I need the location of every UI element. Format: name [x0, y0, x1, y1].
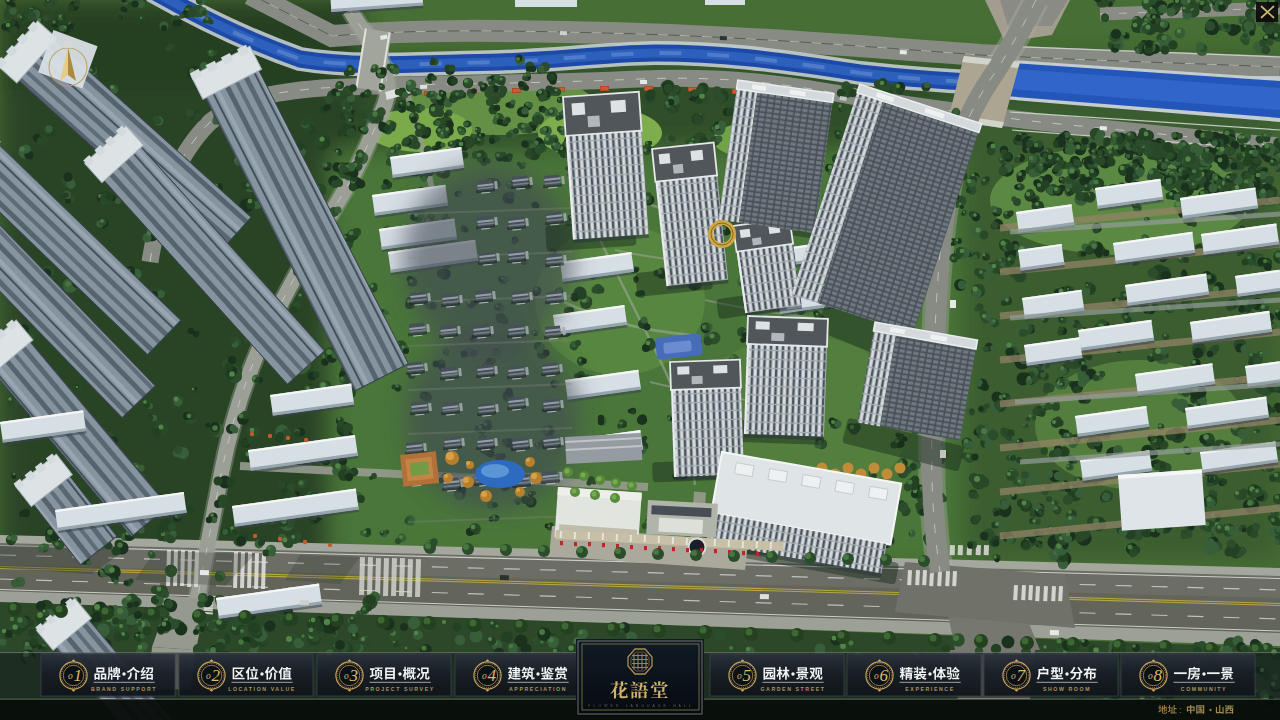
- svg-text:3: 3: [348, 666, 358, 685]
- svg-text:GARDEN STREET: GARDEN STREET: [760, 686, 825, 692]
- svg-text:o: o: [344, 671, 349, 681]
- svg-text:5: 5: [742, 666, 751, 685]
- svg-text:BRAND SUPPORT: BRAND SUPPORT: [91, 686, 157, 692]
- svg-text:o: o: [874, 671, 879, 681]
- svg-text:o: o: [1148, 671, 1153, 681]
- svg-text:1: 1: [73, 666, 82, 685]
- svg-text:8: 8: [1153, 666, 1162, 685]
- svg-text:o: o: [482, 671, 487, 681]
- svg-text:F L O W E R · L A N G U A G E: F L O W E R · L A N G U A G E · H A L L: [588, 704, 691, 708]
- svg-text:LOCATION VALUE: LOCATION VALUE: [228, 686, 296, 692]
- svg-text:o: o: [737, 671, 742, 681]
- svg-text:4: 4: [487, 666, 496, 685]
- svg-text:6: 6: [879, 666, 888, 685]
- svg-text::: :: [1179, 705, 1182, 715]
- svg-text:PROJECT SURVEY: PROJECT SURVEY: [365, 686, 435, 692]
- svg-text:COMMUNITY: COMMUNITY: [1181, 686, 1227, 692]
- svg-text:APPRECIATION: APPRECIATION: [509, 686, 567, 692]
- svg-text:2: 2: [211, 666, 220, 685]
- svg-text:EXPERIENCE: EXPERIENCE: [905, 686, 954, 692]
- svg-text:o: o: [206, 671, 211, 681]
- svg-text:7: 7: [1016, 666, 1026, 685]
- svg-text:o: o: [68, 671, 73, 681]
- svg-text:SHOW ROOM: SHOW ROOM: [1043, 686, 1091, 692]
- svg-text:o: o: [1011, 671, 1016, 681]
